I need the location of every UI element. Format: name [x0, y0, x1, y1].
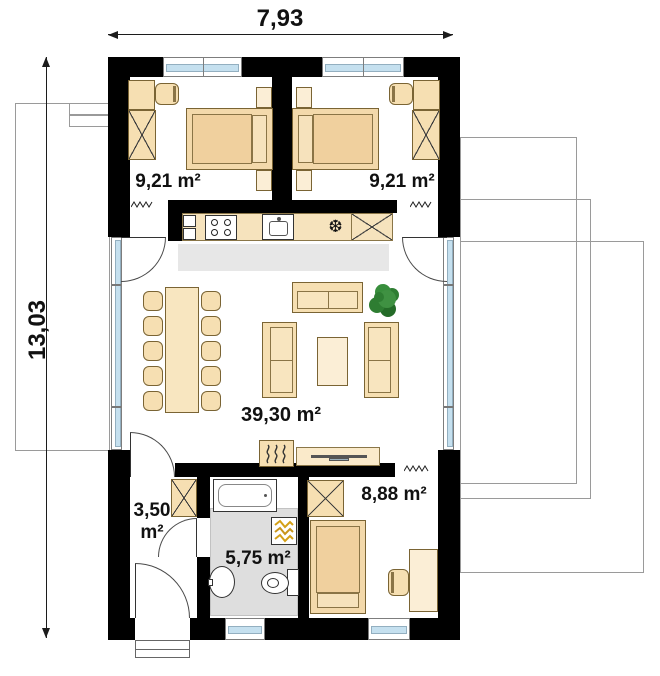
pillow	[317, 593, 359, 608]
area-label-hall-line1: 3,50	[120, 500, 184, 522]
area-label-bathroom: 5,75 m²	[208, 548, 308, 570]
entrance-door-opening	[135, 618, 190, 640]
wall-bedroom-partition	[272, 77, 292, 213]
chair-bedroom-right	[389, 83, 413, 105]
area-label-bedroom-right: 9,21 m²	[352, 171, 452, 193]
tv-cabinet	[296, 447, 380, 466]
window-mullion	[203, 58, 204, 76]
burner	[224, 229, 231, 236]
fireplace-flames	[260, 441, 293, 466]
mattress	[316, 526, 360, 593]
kitchen-floor-strip	[178, 244, 389, 271]
bed-bedroom-left	[186, 108, 273, 170]
glass-transom	[444, 406, 453, 408]
nightstand	[256, 87, 272, 108]
area-label-bedroom-small: 8,88 m²	[344, 484, 444, 506]
wall-right-upper	[438, 57, 460, 237]
floor-plan: ❆	[0, 0, 660, 676]
terrace-outline-left	[15, 103, 110, 451]
window-glass	[115, 240, 121, 447]
wardrobe-bedroom-right-icon	[412, 110, 440, 160]
fireplace-icon	[259, 440, 294, 467]
entrance-step-line	[136, 649, 189, 650]
vent-zigzag-icon	[410, 200, 432, 209]
dining-chair	[201, 341, 221, 361]
dining-chair	[201, 291, 221, 311]
desk-bedroom-right	[413, 80, 440, 110]
mattress	[192, 114, 252, 164]
terrace-step-left-a	[69, 103, 110, 115]
dining-chair	[201, 366, 221, 386]
dimension-arrow-up	[42, 57, 50, 67]
window-bedroom-right	[322, 57, 404, 77]
dimension-arrow-down	[42, 628, 50, 638]
wall-kitchen-stub	[168, 200, 182, 241]
pillow	[252, 115, 267, 163]
burner	[211, 219, 218, 226]
sofa-divider	[328, 291, 329, 309]
window-bedroom-left	[163, 57, 242, 77]
desk-bedroom-left	[128, 80, 155, 110]
wall-right-lower	[438, 450, 460, 640]
wall-kitchen	[172, 200, 397, 213]
radiator-waves	[272, 518, 296, 544]
dining-chair	[201, 391, 221, 411]
glass-transom	[112, 284, 121, 286]
dimension-arrow-right	[443, 31, 453, 39]
dining-chair	[143, 391, 163, 411]
chair-bedroom-left	[155, 83, 179, 105]
window-mullion	[363, 58, 364, 76]
hall-door	[130, 432, 175, 477]
kitchen-cabinet-icon	[351, 213, 393, 241]
vent-zigzag-icon	[131, 200, 153, 209]
sink-tap	[277, 217, 281, 221]
entrance-door	[135, 563, 190, 618]
kitchen-shelf	[183, 215, 196, 227]
pillow	[298, 115, 313, 163]
bathtub-icon	[213, 479, 277, 512]
dimension-width-label: 7,93	[230, 5, 330, 33]
bathtub-drain	[264, 494, 267, 497]
wall-top	[108, 57, 460, 77]
stove-icon	[205, 215, 237, 240]
loveseat-divider	[368, 360, 391, 361]
area-label-living-room: 39,30 m²	[226, 404, 336, 427]
nightstand	[256, 170, 272, 191]
chair-bedroom-small	[388, 569, 409, 596]
window-glass	[371, 626, 407, 634]
terrace-outline-right-3	[460, 241, 644, 573]
coffee-table	[317, 337, 348, 386]
dining-chair	[143, 341, 163, 361]
toilet-bowl-icon	[261, 572, 289, 594]
dimension-height-label: 13,03	[24, 284, 50, 376]
wardrobe-bedroom-small-icon	[307, 480, 344, 517]
loveseat-left	[262, 322, 297, 398]
bed-bedroom-right	[292, 108, 379, 170]
sofa	[292, 282, 363, 313]
terrace-door-left	[121, 237, 166, 282]
burner	[224, 219, 231, 226]
wall-left-upper	[108, 57, 130, 237]
wall-hall-right-a	[197, 477, 210, 518]
dimension-arrow-left	[108, 31, 118, 39]
sink-basin	[269, 221, 288, 236]
plant-icon	[374, 292, 384, 302]
area-label-hall-line2: m²	[120, 522, 184, 544]
bed-bedroom-small	[310, 520, 366, 614]
loveseat-divider	[270, 360, 293, 361]
tv-stand	[329, 458, 349, 461]
vent-zigzag-icon	[404, 464, 430, 473]
dimension-line-width	[108, 34, 453, 35]
dining-table	[165, 287, 199, 413]
chair-back	[392, 86, 395, 102]
nightstand	[296, 170, 312, 191]
kitchen-sink-icon	[262, 214, 294, 240]
dining-chair	[201, 316, 221, 336]
area-label-bedroom-left: 9,21 m²	[118, 171, 218, 193]
dining-chair	[143, 291, 163, 311]
terrace-door-right	[402, 237, 447, 282]
glass-transom	[444, 284, 453, 286]
loveseat-right	[364, 322, 399, 398]
kitchen-shelf	[183, 228, 196, 240]
entrance-steps	[135, 640, 190, 658]
bathroom-sink-icon	[209, 566, 235, 598]
chair-back	[391, 572, 394, 593]
fridge-snowflake-icon: ❆	[320, 213, 351, 241]
desk-bedroom-small	[409, 549, 438, 612]
burner	[211, 229, 218, 236]
dining-chair	[143, 316, 163, 336]
sink-tap	[208, 579, 213, 586]
toilet-bowl-inner	[267, 578, 279, 588]
window-bathroom	[225, 618, 265, 640]
mattress	[313, 114, 373, 164]
chair-back	[173, 86, 176, 102]
terrace-step-left-b	[69, 115, 110, 127]
dining-chair	[143, 366, 163, 386]
window-bedroom-small	[368, 618, 410, 640]
window-glass	[228, 626, 262, 634]
wall-left-lower	[108, 450, 130, 640]
towel-radiator-icon	[271, 517, 297, 545]
window-glass	[447, 240, 453, 447]
glass-transom	[112, 406, 121, 408]
wardrobe-bedroom-left-icon	[128, 110, 156, 160]
nightstand	[296, 87, 312, 108]
